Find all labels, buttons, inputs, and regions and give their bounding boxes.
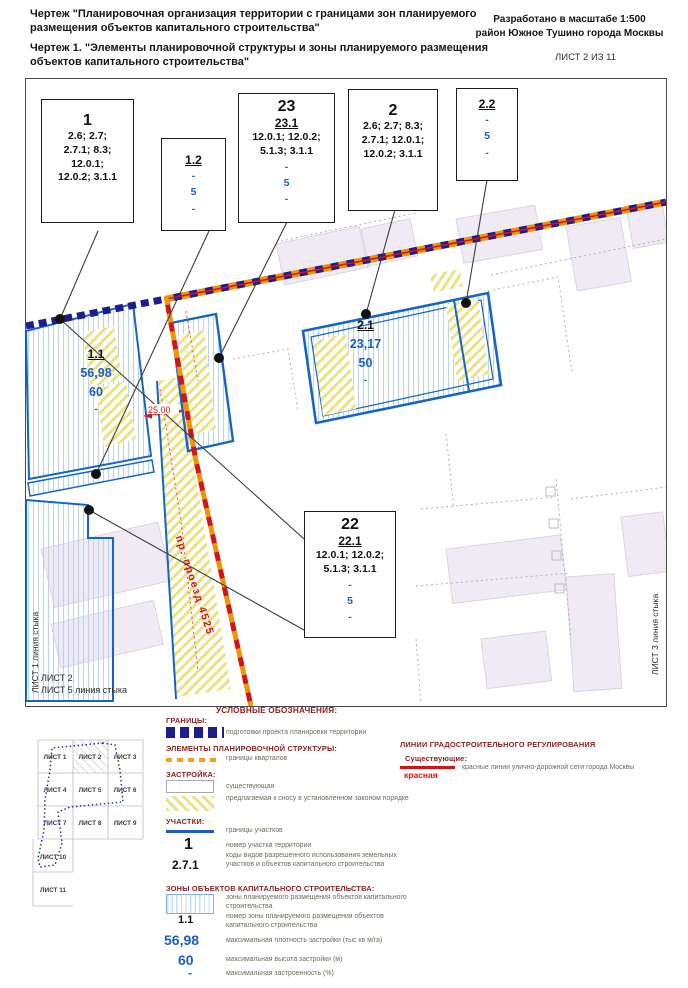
legend-section-borders: ГРАНИЦЫ: <box>166 716 207 725</box>
existing-building-swatch <box>166 780 214 793</box>
height-value: 5 <box>305 593 395 609</box>
scale-note: Разработано в масштабе 1:500 <box>472 13 667 26</box>
density-value: 56,98 <box>61 364 131 383</box>
demolition-swatch <box>166 796 214 811</box>
parcel-number-symbol: 1 <box>184 836 193 854</box>
height-value: 5 <box>162 184 225 200</box>
use-codes: 5.1.3; 3.1.1 <box>305 563 395 577</box>
edge-label-sheet3: ЛИСТ 3 линия стыка <box>650 594 660 675</box>
legend-item-label: предлагаемая к сносу в установленном зак… <box>226 795 416 804</box>
parcel-number: 2 <box>349 102 437 120</box>
red-line-swatch <box>400 766 455 769</box>
density-value: 23,17 <box>328 335 403 354</box>
coverage-value: - <box>239 191 334 207</box>
parcel-number: 23 <box>239 98 334 116</box>
zone-number: 2.2 <box>457 97 517 112</box>
use-codes: 2.6; 2.7; <box>42 130 133 144</box>
dimension-label: 25.00 <box>148 405 171 415</box>
legend-item-label: границы участков <box>226 827 426 836</box>
use-codes: 12.0.2; 3.1.1 <box>349 148 437 162</box>
legend-section-structure: ЭЛЕМЕНТЫ ПЛАНИРОВОЧНОЙ СТРУКТУРЫ: <box>166 744 337 753</box>
use-codes: 12.0.1; 12.0.2; <box>305 549 395 563</box>
edge-label-sheet2: ЛИСТ 2 <box>41 673 73 683</box>
coverage-value: - <box>305 609 395 625</box>
zone-number: 2.1 <box>328 316 403 335</box>
map-canvas: 25.00 1 2.6; 2.7; 2.7.1; 8.3; 12.0.1; 12… <box>25 78 667 707</box>
legend-item-label: границы кварталов <box>226 755 426 764</box>
legend-section-zones: ЗОНЫ ОБЪЕКТОВ КАПИТАЛЬНОГО СТРОИТЕЛЬСТВА… <box>166 884 375 893</box>
svg-text:ЛИСТ 11: ЛИСТ 11 <box>40 887 66 894</box>
use-codes: 5.1.3; 3.1.1 <box>239 145 334 159</box>
coverage-value: - <box>457 145 517 161</box>
legend-item-label: максимальная высота застройки (м) <box>226 956 436 965</box>
density-value: - <box>239 159 334 175</box>
height-value: 5 <box>239 175 334 191</box>
legend-item-label: зоны планируемого размещения объектов ка… <box>226 894 436 912</box>
use-codes-symbol: 2.7.1 <box>172 858 199 872</box>
svg-text:ЛИСТ 6: ЛИСТ 6 <box>114 787 137 794</box>
callout-box-2: 2 2.6; 2.7; 8.3; 2.7.1; 12.0.1; 12.0.2; … <box>348 89 438 211</box>
callout-box-1: 1 2.6; 2.7; 2.7.1; 8.3; 12.0.1; 12.0.2; … <box>41 99 134 223</box>
use-codes: 2.6; 2.7; 8.3; <box>349 120 437 134</box>
svg-text:ЛИСТ 1: ЛИСТ 1 <box>44 754 67 761</box>
district-note: район Южное Тушино города Москвы <box>472 27 667 40</box>
parcel-border-swatch <box>166 830 214 833</box>
parcel-number: 22 <box>305 516 395 534</box>
callout-box-23: 23 23.1 12.0.1; 12.0.2; 5.1.3; 3.1.1 - 5… <box>238 93 335 223</box>
svg-text:ЛИСТ 5: ЛИСТ 5 <box>79 787 102 794</box>
planning-drawing-page: Чертеж "Планировочная организация террит… <box>0 0 688 988</box>
legend-item-label: коды видов разрешенного использования зе… <box>226 852 411 870</box>
use-codes: 2.7.1; 8.3; <box>42 144 133 158</box>
legend-existing-lines: Существующие: <box>405 754 467 763</box>
legend-item-label: номер зоны планируемого размещения объек… <box>226 913 426 931</box>
edge-label-sheet5: ЛИСТ 5 линия стыка <box>41 685 127 695</box>
coverage-value: - <box>328 373 403 389</box>
zone-number: 22.1 <box>305 534 395 549</box>
density-symbol: 56,98 <box>164 932 199 948</box>
zone-number: 23.1 <box>239 116 334 131</box>
zone-label-1-1: 1.1 56,98 60 - <box>61 345 131 418</box>
parcel-number: 1 <box>42 112 133 130</box>
zone-area-swatch <box>166 894 214 914</box>
zone-number: 1.1 <box>61 345 131 364</box>
callout-box-1-2: 1.2 - 5 - <box>161 138 226 231</box>
density-value: - <box>162 168 225 184</box>
callout-box-22: 22 22.1 12.0.1; 12.0.2; 5.1.3; 3.1.1 - 5… <box>304 511 396 638</box>
drawing-title-2: Чертеж 1. "Элементы планировочной структ… <box>30 41 492 69</box>
use-codes: 12.0.1; <box>42 158 133 172</box>
edge-label-sheet1: ЛИСТ 1 линия стыка <box>30 612 40 693</box>
height-value: 60 <box>61 383 131 402</box>
svg-text:ЛИСТ 4: ЛИСТ 4 <box>44 787 67 794</box>
zone-number-symbol: 1.1 <box>178 914 193 926</box>
legend-item-label: максимальная застроенность (%) <box>226 970 436 979</box>
density-value: - <box>305 577 395 593</box>
callout-box-2-2: 2.2 - 5 - <box>456 88 518 181</box>
coverage-value: - <box>61 402 131 418</box>
sheet-cell-labels: ЛИСТ 1 ЛИСТ 2 ЛИСТ 3 ЛИСТ 4 ЛИСТ 5 ЛИСТ … <box>40 754 137 894</box>
drawing-title-1: Чертеж "Планировочная организация террит… <box>30 7 492 35</box>
boundary-dash-swatch <box>166 727 224 738</box>
sheet-number: ЛИСТ 2 ИЗ 11 <box>555 52 616 63</box>
legend-section-parcels: УЧАСТКИ: <box>166 817 205 826</box>
quarter-boundary-swatch <box>166 758 218 762</box>
svg-text:ЛИСТ 7: ЛИСТ 7 <box>44 820 67 827</box>
height-value: 5 <box>457 128 517 144</box>
red-line-name: красная <box>404 770 438 780</box>
zone-number: 1.2 <box>162 153 225 168</box>
svg-text:ЛИСТ 10: ЛИСТ 10 <box>40 854 67 861</box>
zone-label-2-1: 2.1 23,17 50 - <box>328 316 403 389</box>
legend-section-buildings: ЗАСТРОЙКА: <box>166 770 216 779</box>
legend-item-label: красные линии улично-дорожной сети город… <box>462 764 677 773</box>
sheet-index-grid: ЛИСТ 1 ЛИСТ 2 ЛИСТ 3 ЛИСТ 4 ЛИСТ 5 ЛИСТ … <box>25 735 165 910</box>
svg-text:ЛИСТ 8: ЛИСТ 8 <box>79 820 102 827</box>
legend-item-label: номер участка территории <box>226 842 426 851</box>
svg-text:ЛИСТ 9: ЛИСТ 9 <box>114 820 137 827</box>
legend-section-regulation-lines: ЛИНИИ ГРАДОСТРОИТЕЛЬНОГО РЕГУЛИРОВАНИЯ <box>400 740 595 749</box>
height-value: 50 <box>328 354 403 373</box>
use-codes: 12.0.2; 3.1.1 <box>42 171 133 185</box>
legend-title: УСЛОВНЫЕ ОБОЗНАЧЕНИЯ: <box>216 706 337 715</box>
coverage-symbol: - <box>188 966 192 980</box>
demolition-patch <box>430 269 463 293</box>
use-codes: 12.0.1; 12.0.2; <box>239 131 334 145</box>
legend-item-label: существующая <box>226 783 426 792</box>
coverage-value: - <box>162 201 225 217</box>
density-value: - <box>457 112 517 128</box>
use-codes: 2.7.1; 12.0.1; <box>349 134 437 148</box>
legend-item-label: подготовки проекта планировки территории <box>226 729 426 738</box>
svg-text:ЛИСТ 2: ЛИСТ 2 <box>79 754 102 761</box>
legend-item-label: максимальная плотность застройки (тыс кв… <box>226 937 436 946</box>
